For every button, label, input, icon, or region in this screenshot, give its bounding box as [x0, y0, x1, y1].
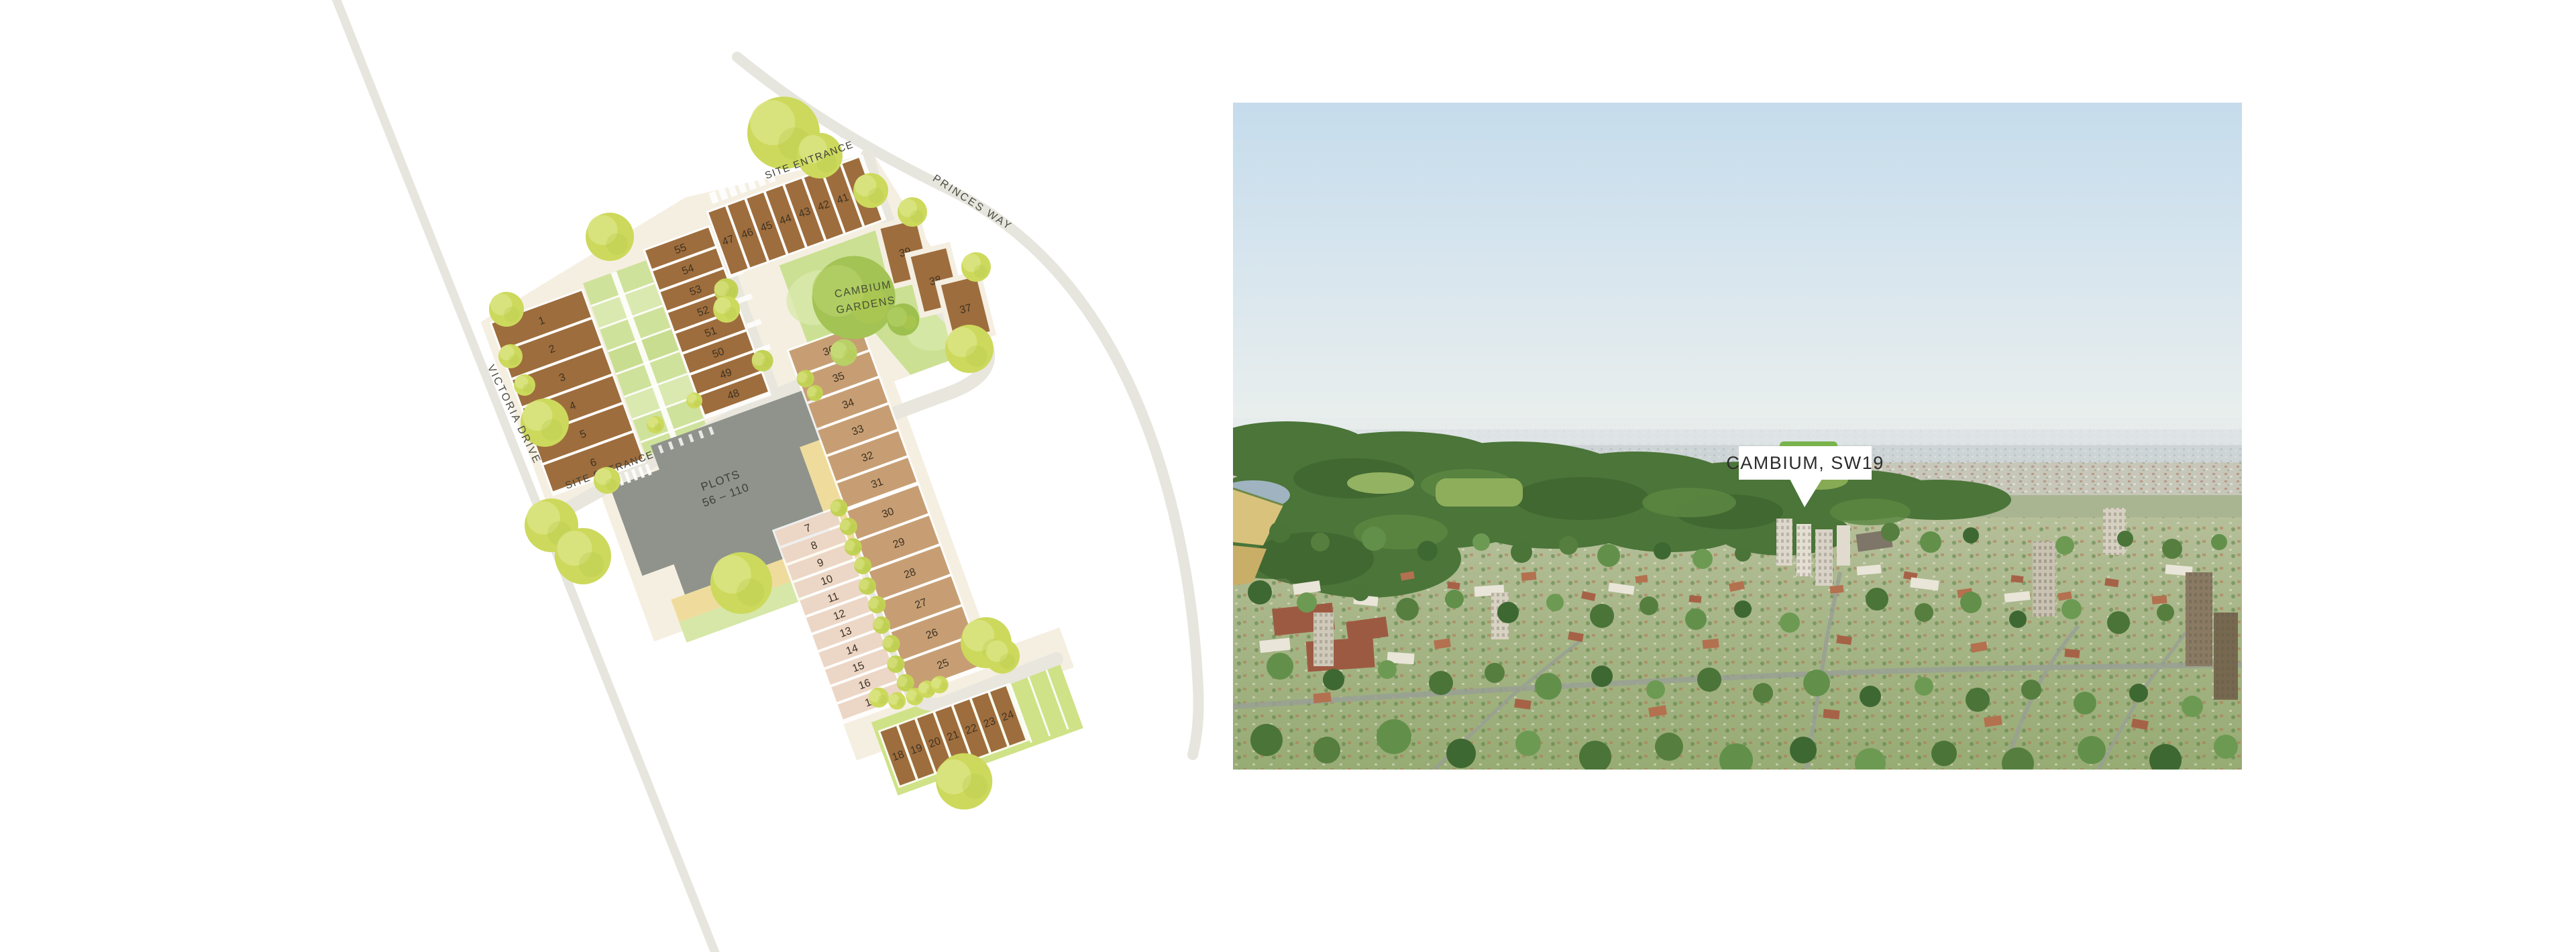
- tree-icon: [2009, 611, 2027, 628]
- tree-icon: [1297, 592, 1317, 613]
- tree-icon: [1640, 596, 1658, 615]
- tree-icon: [961, 252, 991, 282]
- tree-icon: [1920, 531, 1941, 553]
- tree-icon: [1591, 666, 1613, 687]
- tree-icon: [594, 467, 621, 494]
- princes-way-label: PRINCES WAY: [930, 173, 1014, 233]
- site-plan: 1234565554535251504948474645444342414039…: [0, 0, 1275, 952]
- tree-icon: [1915, 603, 1933, 622]
- tree-icon: [1693, 549, 1713, 569]
- tree-icon: [1966, 688, 1990, 712]
- tree-icon: [1931, 741, 1957, 766]
- tree-icon: [1654, 542, 1671, 560]
- tree-icon: [1881, 523, 1900, 541]
- tree-icon: [1248, 580, 1272, 604]
- tree-icon: [1915, 677, 1933, 696]
- tree-icon: [985, 639, 1020, 674]
- tree-icon: [1429, 671, 1453, 695]
- tree-icon: [1497, 602, 1519, 623]
- tree-icon: [1377, 719, 1411, 754]
- tree-icon: [1685, 609, 1707, 630]
- sky: [1233, 103, 2242, 452]
- tree-icon: [489, 292, 524, 327]
- tree-icon: [2117, 531, 2133, 547]
- tree-icon: [1417, 541, 1438, 561]
- tree-icon: [1803, 670, 1830, 696]
- tree-icon: [1735, 545, 1751, 562]
- tree-icon: [2055, 536, 2074, 555]
- tree-icon: [1535, 673, 1562, 700]
- tree-icon: [1655, 733, 1683, 761]
- tree-icon: [1734, 600, 1752, 618]
- tree-icon: [1860, 686, 1881, 707]
- tree-icon: [1590, 604, 1614, 628]
- tree-icon: [498, 344, 523, 368]
- tree-icon: [1597, 544, 1620, 567]
- location-callout: CAMBIUM, SW19: [1739, 446, 1872, 509]
- tree-icon: [1446, 739, 1476, 768]
- aerial-photo-art: [1233, 103, 2242, 770]
- tree-icon: [2214, 735, 2238, 759]
- tree-icon: [1323, 669, 1344, 690]
- tree-icon: [2182, 696, 2203, 717]
- tree-icon: [1250, 724, 1283, 756]
- tree-icon: [2157, 604, 2174, 621]
- tree-icon: [2074, 692, 2096, 715]
- tree-icon: [1511, 541, 1532, 563]
- tree-icon: [2021, 680, 2041, 700]
- tree-icon: [1559, 536, 1578, 555]
- location-callout-box: CAMBIUM, SW19: [1739, 446, 1872, 480]
- tree-icon: [1445, 590, 1464, 609]
- tree-icon: [853, 173, 888, 208]
- tree-icon: [1485, 663, 1505, 683]
- tree-icon: [1313, 737, 1340, 763]
- tree-icon: [514, 374, 535, 396]
- location-callout-label: CAMBIUM, SW19: [1726, 453, 1884, 474]
- common-clearing: [1436, 478, 1523, 507]
- tree-icon: [1362, 527, 1386, 551]
- tree-icon: [1753, 683, 1773, 703]
- tree-icon: [586, 213, 634, 261]
- tree-icon: [1269, 521, 1291, 543]
- tree-icon: [1780, 613, 1800, 633]
- tree-icon: [1790, 737, 1817, 763]
- tree-icon: [1546, 594, 1564, 611]
- tree-icon: [1396, 598, 1419, 621]
- tree-icon: [713, 296, 740, 323]
- tree-icon: [2162, 539, 2182, 559]
- tree-icon: [1267, 653, 1293, 680]
- callout-tail: [1739, 479, 1872, 509]
- tree-icon: [1472, 533, 1490, 551]
- tree-icon: [710, 552, 772, 614]
- tree-icon: [2211, 534, 2227, 550]
- tree-icon: [2129, 684, 2148, 702]
- tree-icon: [1311, 533, 1330, 551]
- aerial-photo: CAMBIUM, SW19: [1233, 103, 2242, 770]
- tree-icon: [1697, 668, 1721, 692]
- tree-icon: [1515, 731, 1541, 756]
- tree-icon: [1960, 592, 1982, 613]
- tree-icon: [1646, 680, 1665, 699]
- tree-icon: [1866, 588, 1888, 611]
- page: 1234565554535251504948474645444342414039…: [0, 0, 2576, 952]
- tree-icon: [1352, 584, 1369, 601]
- tree-icon: [2061, 599, 2082, 619]
- tree-icon: [898, 197, 927, 227]
- tree-icon: [555, 528, 611, 584]
- tree-icon: [686, 392, 702, 409]
- tree-icon: [1378, 660, 1397, 679]
- tree-icon: [647, 416, 664, 433]
- tree-icon: [2107, 611, 2130, 634]
- tree-icon: [2078, 736, 2106, 764]
- tree-icon: [945, 325, 994, 373]
- tree-icon: [1963, 527, 1979, 543]
